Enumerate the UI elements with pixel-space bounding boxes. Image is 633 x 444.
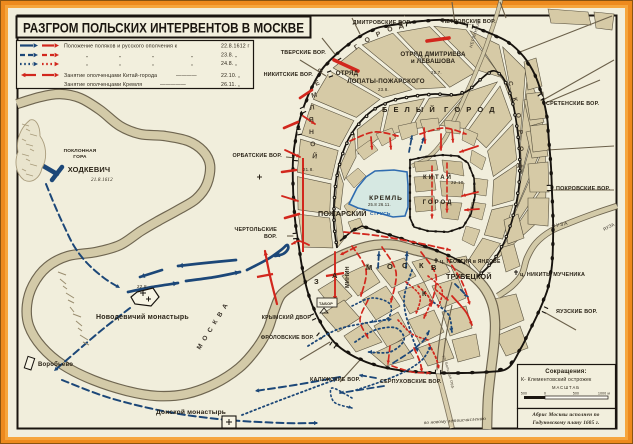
svg-text:ПЕТРОВСКИЕ ВОР.: ПЕТРОВСКИЕ ВОР.	[442, 19, 496, 25]
svg-text:СЕРПУХОВСКИЕ ВОР.: СЕРПУХОВСКИЕ ВОР.	[380, 379, 442, 385]
svg-text:Положение поляков и русского о: Положение поляков и русского ополчения к	[64, 44, 178, 50]
svg-text:25.8 26.11.: 25.8 26.11.	[368, 202, 391, 207]
svg-text:О: О	[387, 262, 393, 271]
svg-text:З: З	[314, 277, 319, 286]
svg-text:ФРОЛОВСКИЕ ВОР.: ФРОЛОВСКИЕ ВОР.	[261, 335, 315, 341]
svg-text:500: 500	[573, 392, 579, 396]
svg-text:26.11. „: 26.11. „	[221, 82, 240, 88]
svg-text:С: С	[402, 261, 408, 270]
svg-text:М: М	[366, 263, 372, 272]
svg-text:ОТРЯД ДМИТРИЕВА: ОТРЯД ДМИТРИЕВА	[400, 51, 466, 58]
svg-text:Б Е Л Ы Й: Б Е Л Ы Й	[382, 105, 437, 114]
svg-text:ЧЕРТОЛЬСКИЕ: ЧЕРТОЛЬСКИЕ	[235, 227, 278, 233]
svg-text:КАЛУЖСКИЕ ВОР.: КАЛУЖСКИЕ ВОР.	[310, 377, 361, 383]
svg-text:КРЫМСКИЙ ДВОР: КРЫМСКИЙ ДВОР	[262, 313, 312, 321]
svg-text:Занятие ополченцами Китай-горо: Занятие ополченцами Китай-города	[64, 72, 157, 79]
svg-text:„: „	[152, 61, 154, 67]
svg-text:НИКИТСКИЕ ВОР.: НИКИТСКИЕ ВОР.	[264, 72, 314, 78]
svg-text:22.10.: 22.10.	[451, 180, 465, 185]
svg-text:СТРУСЬ: СТРУСЬ	[370, 211, 391, 217]
svg-text:К: К	[419, 261, 424, 270]
svg-text:Занятие ополченцами Кремля: Занятие ополченцами Кремля	[64, 82, 142, 88]
svg-text:ГОРОД: ГОРОД	[423, 200, 454, 206]
svg-text:500: 500	[521, 392, 527, 396]
svg-text:Сокращения:: Сокращения:	[545, 369, 586, 375]
svg-text:Г О Р О Д: Г О Р О Д	[444, 105, 497, 114]
svg-text:ЛОПАТЫ-ПОЖАРСКОГО: ЛОПАТЫ-ПОЖАРСКОГО	[347, 78, 425, 85]
svg-text:ц. ГЕОРГИЯ в ЯНДОВЕ: ц. ГЕОРГИЯ в ЯНДОВЕ	[440, 259, 501, 265]
svg-text:Воробьево: Воробьево	[38, 361, 73, 368]
svg-text:Л: Л	[309, 104, 315, 112]
svg-text:Новодевичий монастырь: Новодевичий монастырь	[96, 313, 189, 321]
svg-text:МАСШТАБ: МАСШТАБ	[552, 385, 580, 390]
svg-text:ПОКЛОННАЯ: ПОКЛОННАЯ	[64, 148, 97, 154]
svg-text:„: „	[86, 61, 88, 67]
svg-text:О: О	[310, 141, 316, 148]
svg-text:Абрис Москвы исполнен по: Абрис Москвы исполнен по	[531, 411, 599, 418]
svg-text:ГОРА: ГОРА	[73, 154, 87, 160]
svg-text:Годуновскому плану 1605 г.: Годуновскому плану 1605 г.	[532, 419, 600, 426]
svg-text:ц. НИКИТЫ МУЧЕНИКА: ц. НИКИТЫ МУЧЕНИКА	[520, 272, 585, 278]
svg-text:22.10. „: 22.10. „	[221, 73, 240, 79]
svg-text:23.8. „: 23.8. „	[221, 53, 237, 59]
svg-text:ОРБАТСКИЕ ВОР.: ОРБАТСКИЕ ВОР.	[232, 153, 282, 159]
svg-text:„: „	[191, 61, 193, 67]
svg-text:22.8.1612 г: 22.8.1612 г	[221, 44, 250, 50]
svg-text:ТРУБЕЦКОЙ: ТРУБЕЦКОЙ	[446, 272, 492, 281]
svg-text:Я: Я	[309, 117, 315, 124]
svg-text:ПОКРОВСКИЕ ВОР.: ПОКРОВСКИЕ ВОР.	[556, 186, 610, 192]
svg-text:„: „	[152, 53, 154, 59]
svg-text:КИТАЙ: КИТАЙ	[423, 173, 453, 181]
svg-text:————: ————	[176, 73, 197, 79]
svg-text:А: А	[332, 271, 338, 280]
svg-text:21.8.1612: 21.8.1612	[91, 178, 113, 183]
svg-text:ХОДКЕВИЧ: ХОДКЕВИЧ	[68, 165, 111, 174]
svg-text:25.7.: 25.7.	[431, 70, 442, 75]
svg-text:ПОЖАРСКИЙ: ПОЖАРСКИЙ	[318, 209, 367, 218]
svg-text:ЯУЗСКИЕ ВОР.: ЯУЗСКИЕ ВОР.	[556, 309, 598, 315]
svg-text:Донской монастырь: Донской монастырь	[156, 408, 226, 416]
svg-text:СРЕТЕНСКИЕ ВОР.: СРЕТЕНСКИЕ ВОР.	[546, 101, 600, 107]
svg-text:МИНИН: МИНИН	[345, 266, 351, 288]
svg-text:0: 0	[544, 392, 546, 396]
svg-text:24.8. „: 24.8. „	[221, 61, 237, 67]
svg-text:„: „	[86, 53, 88, 59]
svg-text:РАЗГРОМ ПОЛЬСКИХ ИНТЕРВЕНТОВ В: РАЗГРОМ ПОЛЬСКИХ ИНТЕРВЕНТОВ В МОСКВЕ	[23, 20, 304, 36]
svg-text:КРЕМЛЬ: КРЕМЛЬ	[369, 195, 403, 202]
svg-text:К: К	[422, 291, 427, 298]
svg-text:Н: Н	[309, 129, 314, 136]
svg-text:23.8.: 23.8.	[378, 87, 389, 92]
svg-text:К- Клементовский острожек: К- Клементовский острожек	[521, 376, 592, 383]
svg-text:„: „	[119, 53, 121, 59]
svg-text:ТАБОР: ТАБОР	[319, 302, 333, 306]
svg-text:22.8.: 22.8.	[137, 284, 148, 289]
svg-text:ОТРЯД: ОТРЯД	[336, 70, 359, 77]
svg-text:21.8.: 21.8.	[303, 167, 314, 172]
svg-text:ТВЕРСКИЕ ВОР.: ТВЕРСКИЕ ВОР.	[281, 50, 327, 56]
svg-text:„: „	[119, 61, 121, 67]
svg-text:—————: —————	[160, 82, 186, 88]
svg-text:ВОР.: ВОР.	[264, 234, 277, 240]
svg-text:В: В	[431, 263, 437, 272]
svg-text:„: „	[191, 53, 193, 59]
svg-text:1000 м: 1000 м	[598, 392, 610, 396]
svg-text:и ЛЕВАШОВА: и ЛЕВАШОВА	[411, 58, 456, 65]
